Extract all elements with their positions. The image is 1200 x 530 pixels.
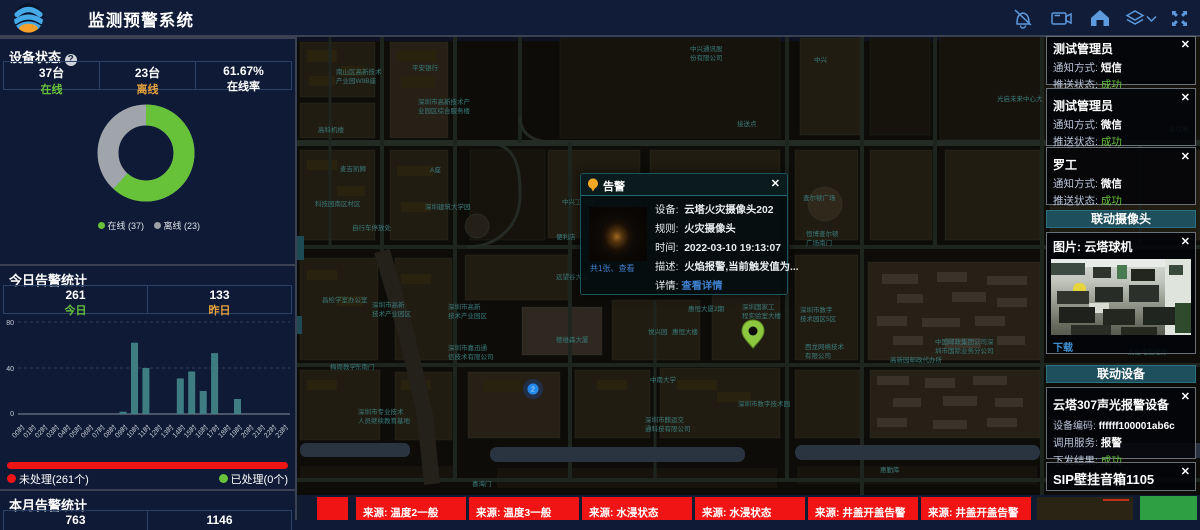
svg-text:深圳市数字技术园: 深圳市数字技术园: [738, 399, 790, 408]
svg-text:南山区高新技术: 南山区高新技术: [336, 67, 382, 76]
svg-text:悦兴园: 悦兴园: [648, 327, 668, 336]
svg-text:自行车停放处: 自行车停放处: [352, 223, 392, 232]
svg-text:惠勤库: 惠勤库: [880, 465, 900, 474]
svg-text:深圳市高新: 深圳市高新: [448, 302, 481, 311]
svg-text:光启未来中心大: 光启未来中心大: [997, 94, 1043, 103]
svg-text:份有限公司: 份有限公司: [690, 53, 723, 62]
svg-text:圳市国际业务分公司: 圳市国际业务分公司: [935, 346, 994, 355]
svg-text:深圳市麒运交: 深圳市麒运交: [645, 415, 685, 424]
svg-text:广场南门: 广场南门: [806, 238, 832, 247]
svg-text:A座: A座: [430, 165, 441, 174]
svg-text:0: 0: [10, 411, 14, 418]
svg-text:平安银行: 平安银行: [412, 63, 439, 72]
svg-text:技术园区5区: 技术园区5区: [800, 314, 837, 323]
svg-text:人员继续教育基地: 人员继续教育基地: [358, 416, 411, 425]
svg-text:深圳市专业技术: 深圳市专业技术: [358, 407, 404, 416]
svg-text:深圳市高新: 深圳市高新: [372, 300, 405, 309]
svg-text:80: 80: [6, 320, 14, 327]
svg-text:中兴通讯股: 中兴通讯股: [690, 44, 723, 53]
svg-text:40: 40: [6, 366, 14, 373]
svg-text:喜海门: 喜海门: [472, 479, 492, 488]
svg-text:昌检学室办公室: 昌检学室办公室: [322, 295, 368, 304]
svg-text:程实验室大楼: 程实验室大楼: [742, 311, 782, 320]
svg-text:业园区综合服务楼: 业园区综合服务楼: [418, 106, 471, 115]
svg-text:产业园W9B座: 产业园W9B座: [336, 76, 377, 85]
svg-text:西龙网络技术: 西龙网络技术: [805, 342, 845, 351]
svg-text:深圳国家工: 深圳国家工: [742, 302, 775, 311]
svg-text:信技术有限公司: 信技术有限公司: [448, 352, 494, 361]
svg-text:深圳市数字: 深圳市数字: [800, 305, 833, 314]
svg-text:中兴: 中兴: [814, 55, 828, 64]
svg-text:深圳市嘉迅通: 深圳市嘉迅通: [448, 343, 488, 352]
svg-text:通科技有限公司: 通科技有限公司: [645, 424, 691, 433]
svg-text:便利店: 便利店: [556, 232, 576, 241]
svg-text:技术产业园区: 技术产业园区: [448, 311, 488, 320]
svg-text:高新园邮政代办所: 高新园邮政代办所: [890, 355, 943, 364]
svg-text:有限公司: 有限公司: [805, 351, 831, 360]
svg-text:东南门: 东南门: [355, 362, 375, 371]
svg-text:技术产业园区: 技术产业园区: [372, 309, 412, 318]
svg-text:查尔顿广场: 查尔顿广场: [803, 193, 836, 202]
svg-text:科技园南区村区: 科技园南区村区: [315, 199, 361, 208]
svg-text:惠恒大楼: 惠恒大楼: [672, 327, 699, 336]
svg-text:中国邮政集团公司深: 中国邮政集团公司深: [935, 337, 994, 346]
svg-text:德维森大厦: 德维森大厦: [556, 335, 589, 344]
svg-text:深圳建筑大学园: 深圳建筑大学园: [425, 202, 471, 211]
svg-text:接送点: 接送点: [737, 119, 757, 128]
svg-text:惠恒大厦2期: 惠恒大厦2期: [688, 304, 725, 313]
svg-text:高科机楼: 高科机楼: [318, 125, 345, 134]
svg-text:梅周教学: 梅周教学: [330, 362, 357, 371]
svg-text:深圳市高新技术产: 深圳市高新技术产: [418, 97, 471, 106]
svg-text:麦吉凯狮: 麦吉凯狮: [340, 164, 367, 173]
svg-text:中南大学: 中南大学: [650, 375, 677, 384]
svg-text:恒博查尔顿: 恒博查尔顿: [806, 229, 839, 238]
svg-text:2: 2: [531, 387, 535, 394]
